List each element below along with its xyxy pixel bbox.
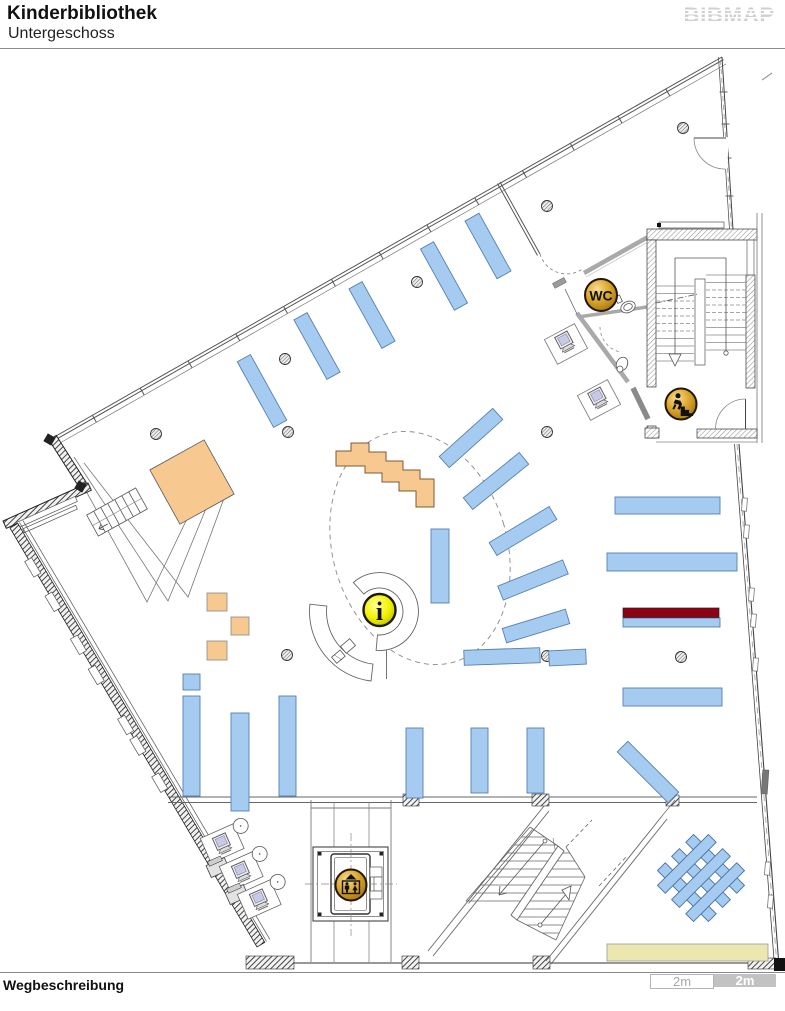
svg-text:i: i: [376, 597, 383, 626]
svg-text:WC: WC: [589, 288, 612, 304]
